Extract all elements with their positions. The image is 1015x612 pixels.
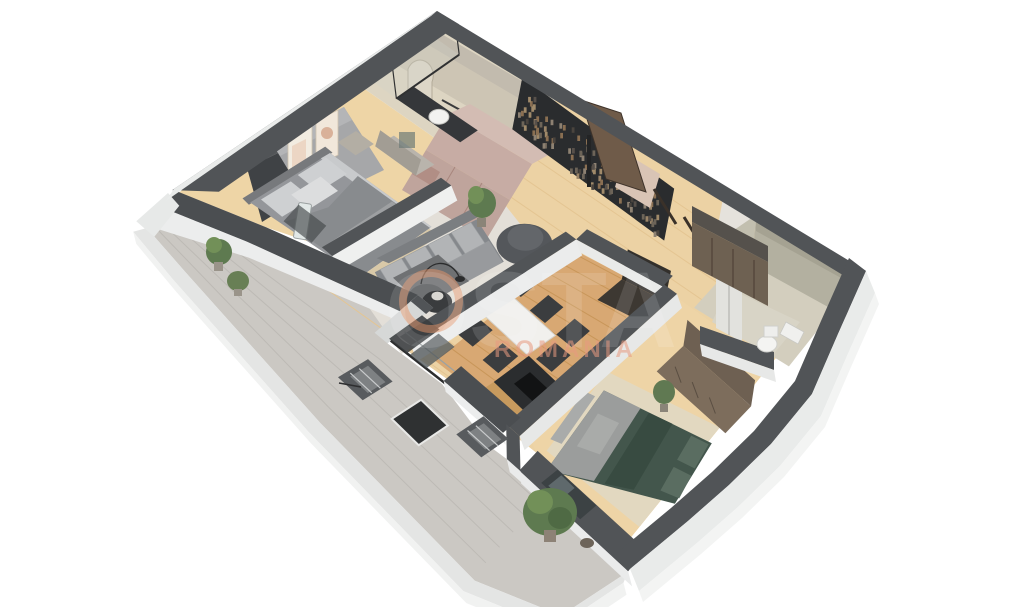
svg-text:ROMANIA: ROMANIA xyxy=(494,336,637,363)
